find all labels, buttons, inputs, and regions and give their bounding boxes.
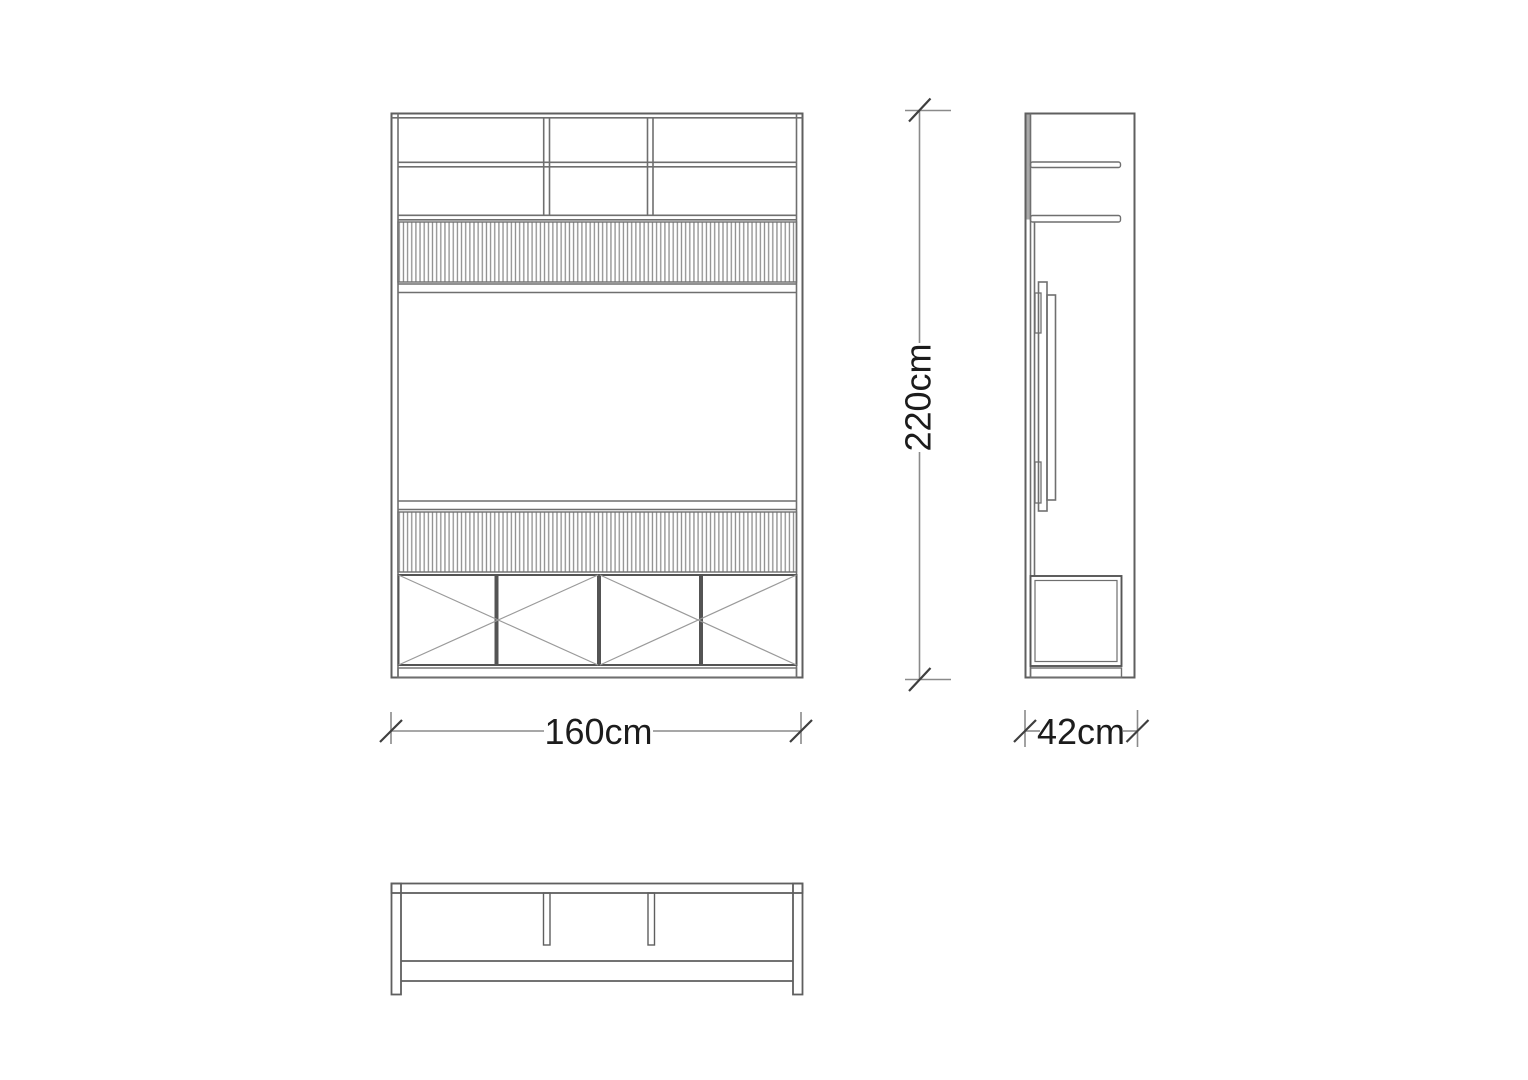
side-shelf-profile [1031,216,1121,223]
plan-view [392,884,803,995]
side-tv-panel-bar [1047,295,1056,500]
fluted-panel-lower [398,512,797,572]
plan-shelf-divider [648,893,655,945]
side-plinth [1031,668,1122,678]
width-dimension-label: 160cm [544,711,652,752]
front-plinth [398,668,797,678]
plan-shelf-divider [544,893,551,945]
plan-left-side-panel [392,884,402,995]
side-lower-cabinet-inner [1035,581,1117,662]
side-lower-cabinet-outer [1031,576,1122,666]
height-dimension: 220cm [898,99,952,692]
depth-dimension-label: 42cm [1037,711,1125,752]
door-panel [600,575,700,665]
side-tv-panel-bar [1039,282,1048,511]
fluted-panel-upper [398,222,797,282]
door-panel [498,575,599,665]
technical-drawing-canvas: 220cm 160cm 42cm [0,0,1528,1080]
lower-cabinet-doors [399,575,797,665]
height-dimension-label: 220cm [898,343,939,451]
plan-right-side-panel [793,884,803,995]
depth-dimension: 42cm [1014,710,1149,752]
side-shelf-profile [1031,162,1121,168]
front-elevation-view [392,114,803,678]
door-panel [399,575,496,665]
side-outer-frame [1026,114,1135,678]
side-panel-edge-shading [1027,115,1031,220]
technical-drawing-page: 220cm 160cm 42cm [0,0,1528,1080]
door-panel [702,575,797,665]
side-elevation-view [1026,114,1135,678]
width-dimension: 160cm [380,711,812,752]
plan-back-panel [392,884,803,894]
